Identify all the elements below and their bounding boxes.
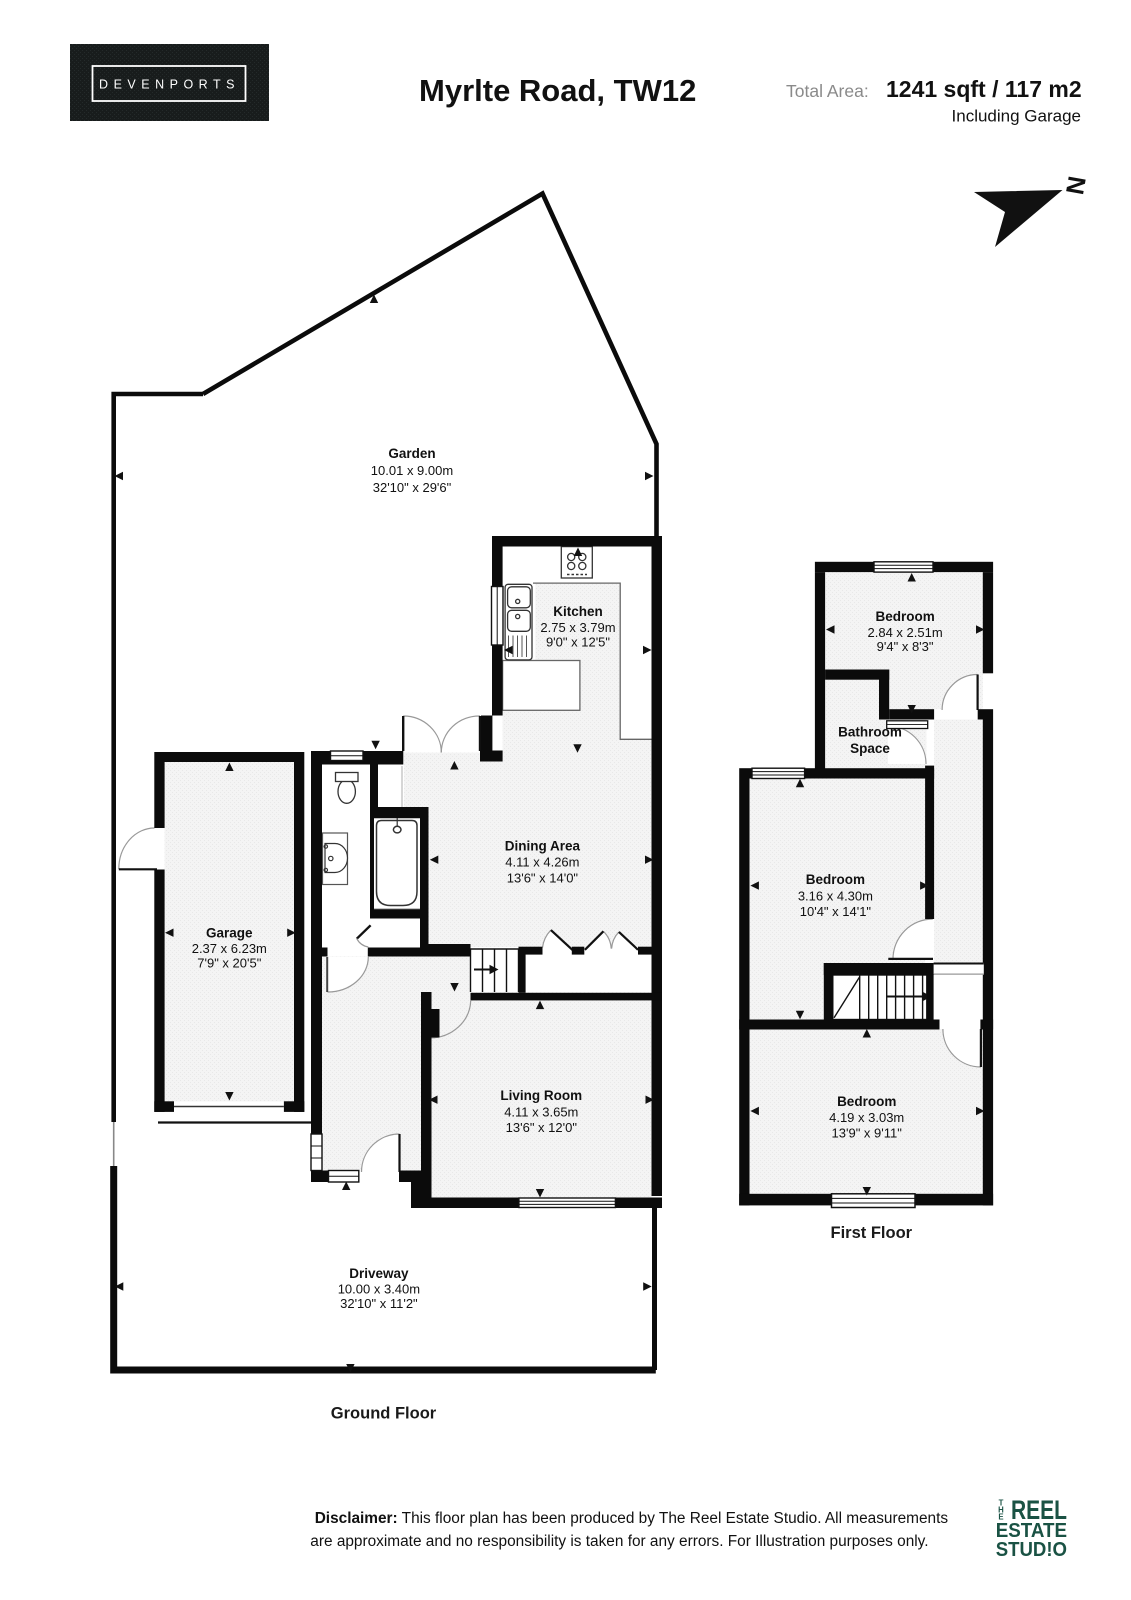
- svg-text:First Floor: First Floor: [831, 1224, 913, 1242]
- svg-text:9'4" x 8'3": 9'4" x 8'3": [877, 639, 934, 654]
- svg-text:32'10" x 29'6": 32'10" x 29'6": [373, 480, 452, 495]
- svg-text:Dining Area: Dining Area: [505, 839, 581, 854]
- svg-text:4.19 x 3.03m: 4.19 x 3.03m: [829, 1110, 904, 1125]
- svg-text:Driveway: Driveway: [349, 1266, 409, 1281]
- svg-text:Garden: Garden: [388, 446, 435, 461]
- svg-text:Garage: Garage: [206, 925, 253, 940]
- svg-text:1241 sqft / 117 m2: 1241 sqft / 117 m2: [886, 76, 1082, 102]
- svg-text:2.75 x 3.79m: 2.75 x 3.79m: [540, 620, 615, 635]
- svg-text:Bedroom: Bedroom: [837, 1094, 896, 1109]
- svg-text:4.11 x 4.26m: 4.11 x 4.26m: [505, 855, 579, 870]
- svg-text:32'10" x 11'2": 32'10" x 11'2": [340, 1296, 418, 1311]
- svg-text:are approximate and no respons: are approximate and no responsibility is…: [310, 1533, 928, 1550]
- svg-text:Bathroom: Bathroom: [838, 724, 902, 739]
- svg-text:4.11 x 3.65m: 4.11 x 3.65m: [504, 1105, 578, 1120]
- svg-text:Myrlte Road, TW12: Myrlte Road, TW12: [419, 73, 696, 108]
- svg-text:13'6" x 12'0": 13'6" x 12'0": [506, 1120, 578, 1135]
- svg-text:Bedroom: Bedroom: [806, 872, 865, 887]
- svg-text:Total Area:: Total Area:: [786, 81, 869, 101]
- svg-text:13'9" x 9'11": 13'9" x 9'11": [832, 1126, 903, 1141]
- svg-text:Bedroom: Bedroom: [875, 609, 934, 624]
- svg-text:Including Garage: Including Garage: [952, 107, 1081, 126]
- svg-text:3.16 x 4.30m: 3.16 x 4.30m: [798, 889, 873, 904]
- svg-text:Kitchen: Kitchen: [553, 604, 603, 619]
- svg-text:13'6" x 14'0": 13'6" x 14'0": [507, 871, 579, 886]
- svg-text:Living Room: Living Room: [500, 1088, 582, 1103]
- svg-text:10.00 x 3.40m: 10.00 x 3.40m: [338, 1282, 420, 1297]
- svg-text:2.84 x 2.51m: 2.84 x 2.51m: [868, 625, 943, 640]
- svg-text:STUD!O: STUD!O: [996, 1539, 1067, 1561]
- svg-text:Disclaimer: This floor plan ha: Disclaimer: This floor plan has been pro…: [315, 1510, 949, 1527]
- svg-text:DEVENPORTS: DEVENPORTS: [99, 78, 240, 92]
- svg-text:9'0" x 12'5": 9'0" x 12'5": [546, 635, 610, 650]
- svg-text:Space: Space: [850, 741, 890, 756]
- svg-text:10.01 x 9.00m: 10.01 x 9.00m: [371, 463, 453, 478]
- svg-text:7'9" x 20'5": 7'9" x 20'5": [197, 955, 261, 970]
- svg-text:Ground Floor: Ground Floor: [331, 1405, 437, 1423]
- svg-text:2.37 x 6.23m: 2.37 x 6.23m: [192, 941, 267, 956]
- svg-text:10'4" x 14'1": 10'4" x 14'1": [800, 904, 872, 919]
